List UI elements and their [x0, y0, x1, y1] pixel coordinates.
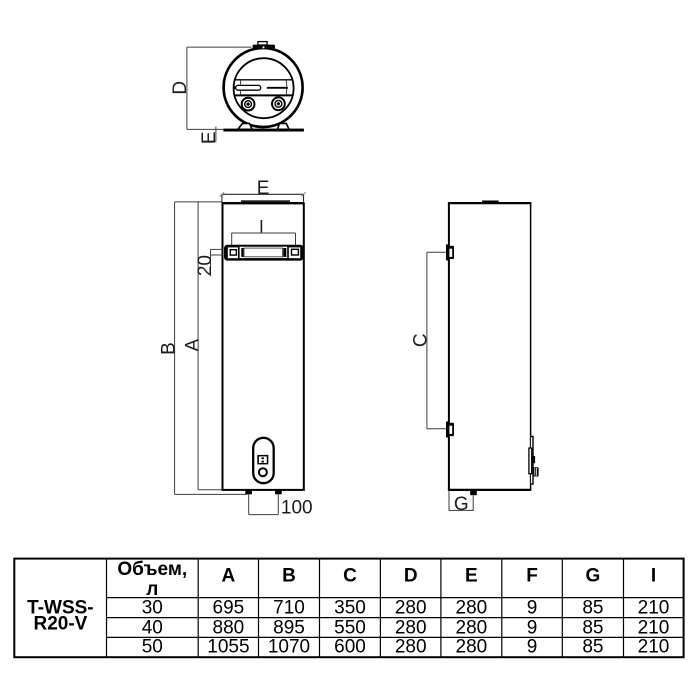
svg-text:9: 9	[527, 637, 538, 658]
svg-text:85: 85	[582, 637, 603, 658]
svg-text:895: 895	[273, 618, 305, 639]
svg-text:550: 550	[334, 618, 366, 639]
svg-text:E: E	[257, 178, 270, 199]
svg-text:E: E	[465, 566, 478, 587]
svg-text:G: G	[586, 566, 601, 587]
svg-text:1070: 1070	[268, 637, 310, 658]
svg-text:B: B	[158, 342, 179, 355]
svg-text:350: 350	[334, 598, 366, 619]
svg-text:880: 880	[213, 618, 245, 639]
svg-text:B: B	[282, 566, 296, 587]
svg-text:F: F	[526, 566, 538, 587]
svg-text:I: I	[651, 566, 656, 587]
svg-text:50: 50	[142, 637, 163, 658]
svg-text:20: 20	[195, 255, 216, 276]
svg-text:A: A	[222, 566, 236, 587]
svg-text:D: D	[170, 81, 191, 95]
svg-text:210: 210	[638, 637, 670, 658]
svg-text:280: 280	[395, 618, 427, 639]
svg-text:40: 40	[142, 618, 163, 639]
svg-text:280: 280	[456, 598, 488, 619]
svg-text:280: 280	[395, 598, 427, 619]
svg-text:D: D	[404, 566, 418, 587]
svg-text:C: C	[411, 333, 432, 347]
svg-text:210: 210	[638, 598, 670, 619]
svg-text:280: 280	[456, 637, 488, 658]
svg-text:C: C	[343, 566, 357, 587]
svg-text:Объем,: Объем,	[117, 559, 187, 580]
svg-text:9: 9	[527, 598, 538, 619]
svg-text:600: 600	[334, 637, 366, 658]
svg-text:G: G	[454, 494, 469, 515]
svg-text:1055: 1055	[207, 637, 249, 658]
svg-text:210: 210	[638, 618, 670, 639]
svg-text:A: A	[182, 339, 203, 352]
svg-text:280: 280	[456, 618, 488, 639]
svg-text:E: E	[199, 131, 220, 144]
svg-text:695: 695	[213, 598, 245, 619]
svg-text:710: 710	[273, 598, 305, 619]
svg-text:280: 280	[395, 637, 427, 658]
svg-text:85: 85	[582, 618, 603, 639]
svg-text:R20-V: R20-V	[33, 613, 87, 634]
svg-text:100: 100	[281, 498, 313, 519]
svg-text:85: 85	[582, 598, 603, 619]
svg-text:9: 9	[527, 618, 538, 639]
svg-text:30: 30	[142, 598, 163, 619]
